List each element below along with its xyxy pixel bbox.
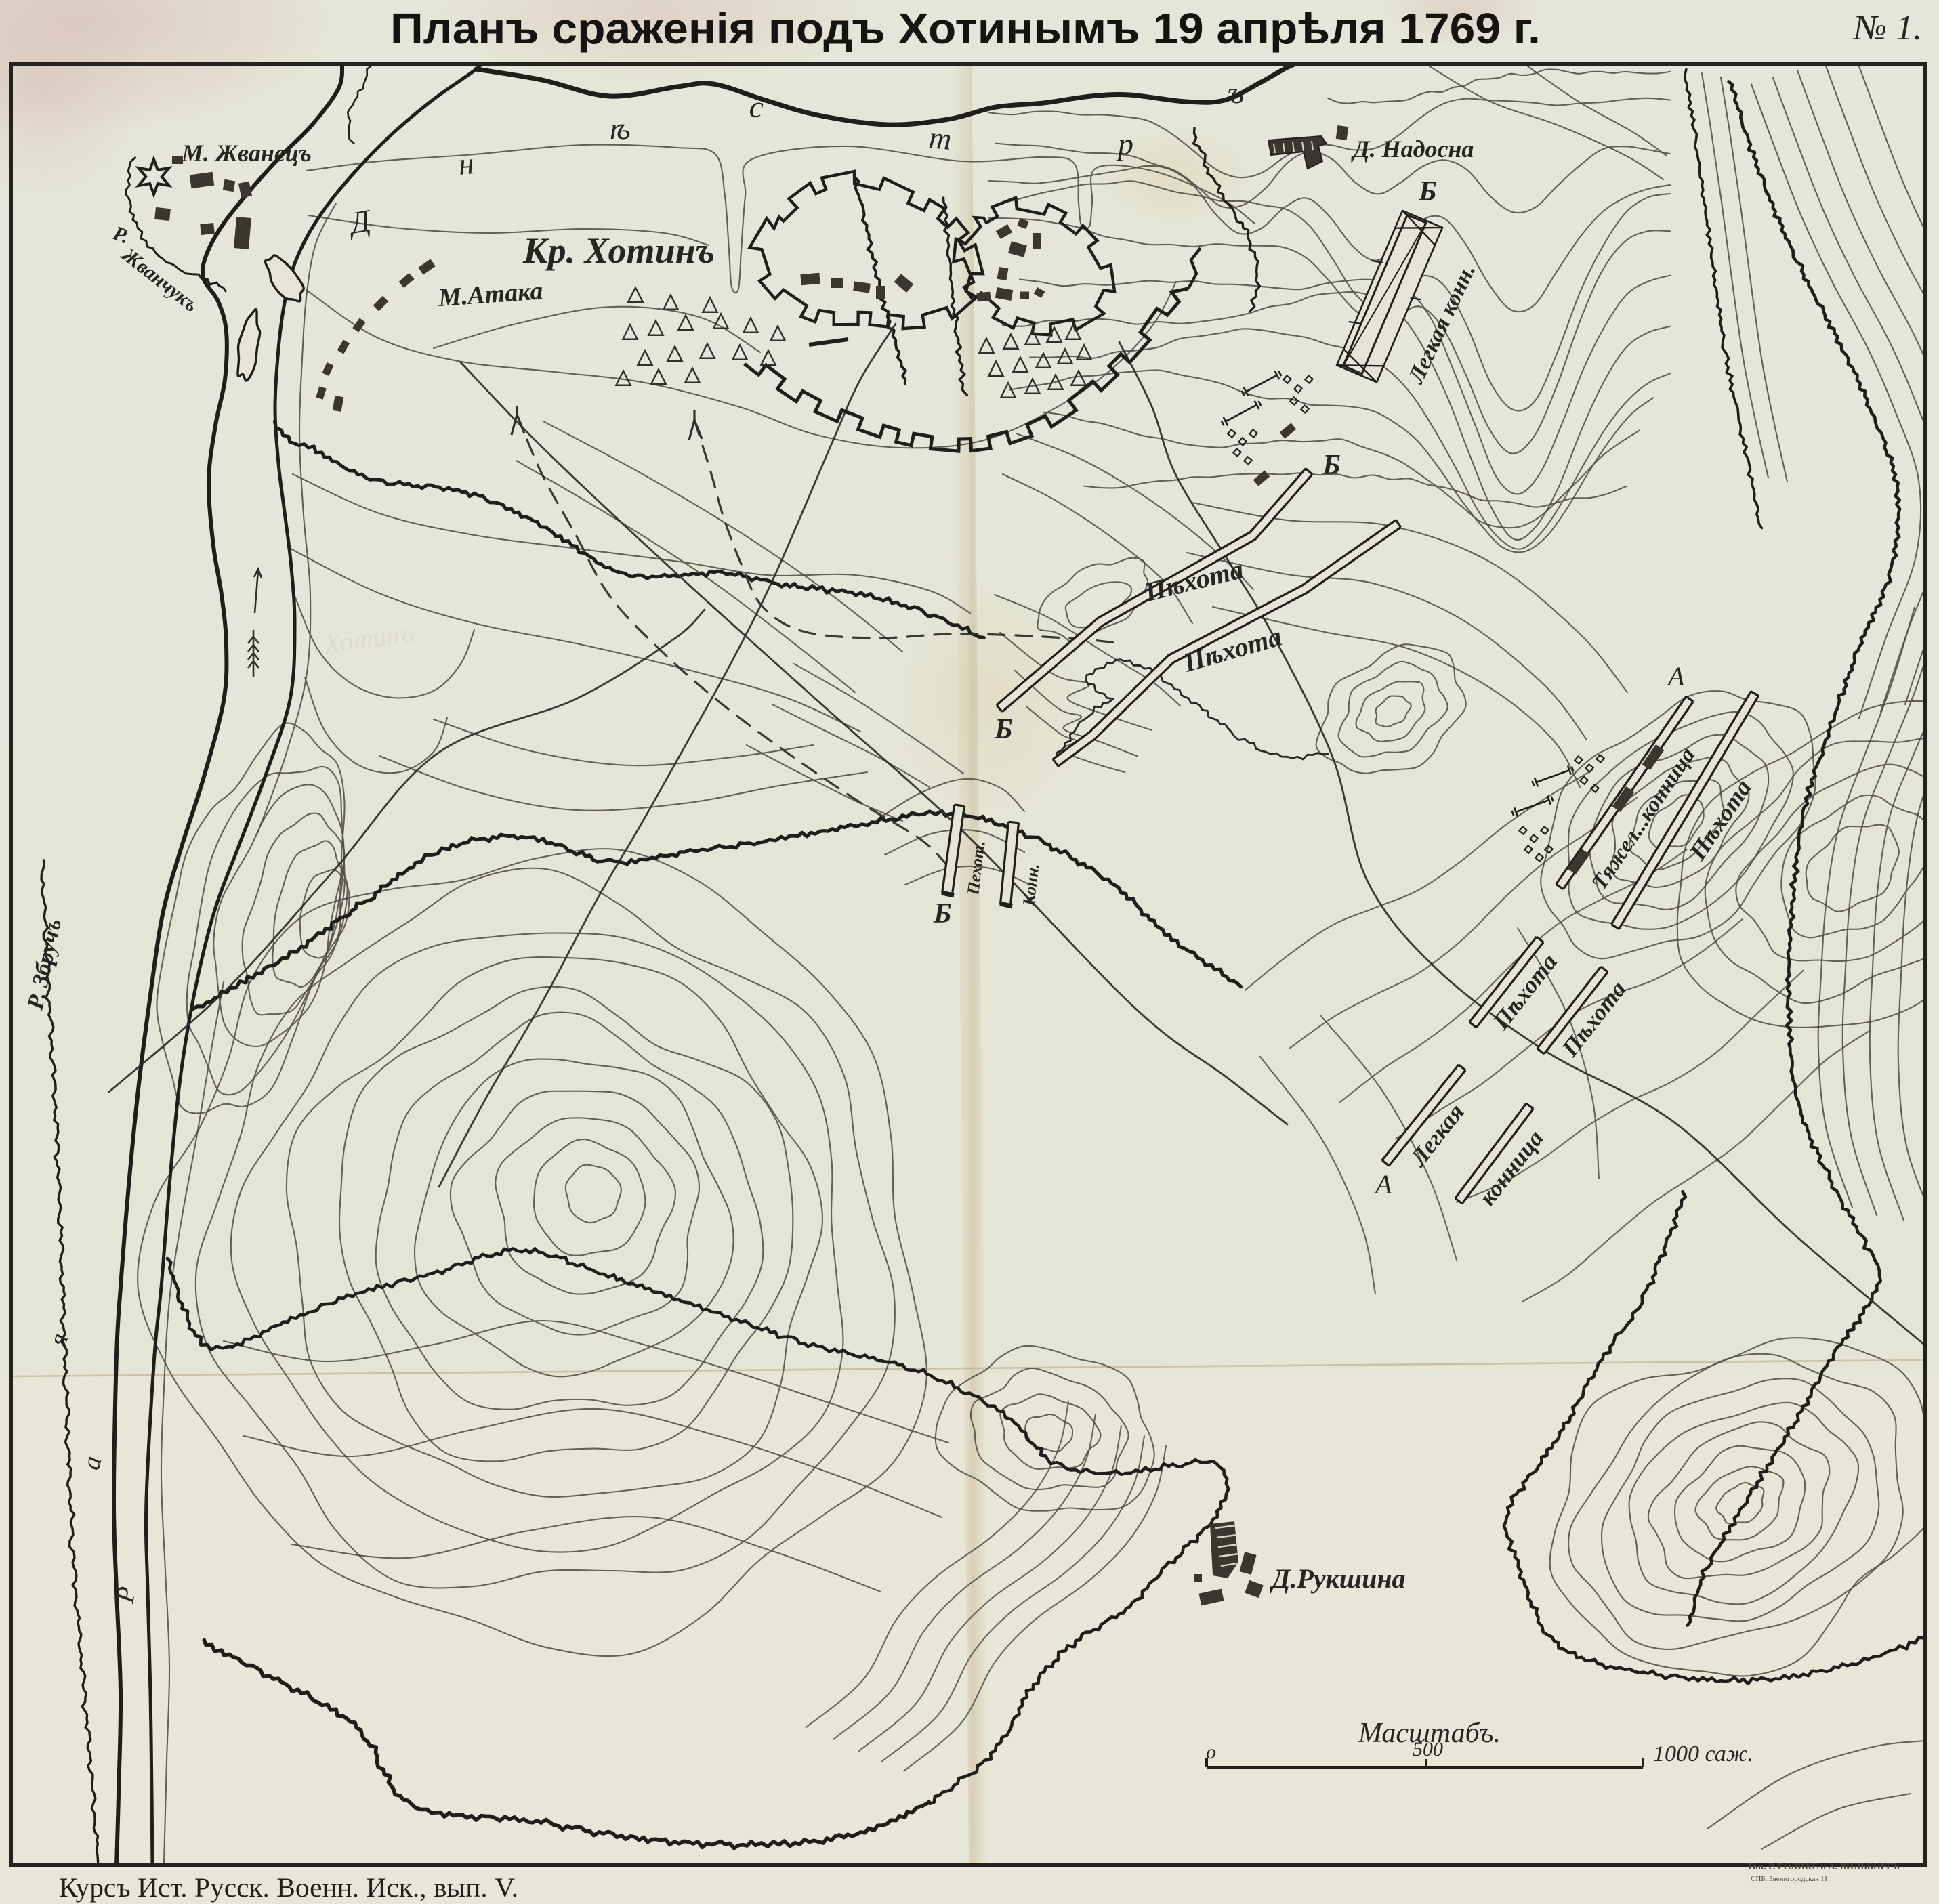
svg-text:Д.Рукшина: Д.Рукшина: [1269, 1563, 1406, 1594]
svg-text:Б: Б: [1322, 450, 1341, 481]
svg-text:Б: Б: [994, 714, 1013, 745]
svg-text:ъ: ъ: [1228, 75, 1244, 110]
svg-text:500: 500: [1413, 1738, 1443, 1760]
svg-text:М. Жванецъ: М. Жванецъ: [181, 140, 312, 167]
svg-text:н: н: [457, 146, 475, 182]
svg-text:Б: Б: [933, 898, 952, 929]
svg-text:№ 1.: № 1.: [1852, 9, 1922, 47]
svg-text:о: о: [1206, 1741, 1216, 1763]
svg-text:Планъ сраженія подъ Хотинымъ 1: Планъ сраженія подъ Хотинымъ 19 апрѣля 1…: [390, 4, 1541, 53]
svg-text:1000 саж.: 1000 саж.: [1653, 1741, 1753, 1767]
svg-text:А: А: [1373, 1169, 1392, 1200]
svg-text:А: А: [1666, 661, 1685, 692]
svg-text:СПБ. Звенигородская 11: СПБ. Звенигородская 11: [1751, 1875, 1828, 1883]
svg-text:Б: Б: [1418, 176, 1437, 207]
svg-text:р: р: [1116, 127, 1133, 161]
svg-text:ѣ: ѣ: [610, 111, 631, 146]
svg-text:Д. Надосна: Д. Надосна: [1351, 135, 1474, 163]
svg-text:т: т: [927, 120, 953, 156]
svg-text:Кр. Хотинъ: Кр. Хотинъ: [522, 230, 715, 271]
svg-text:Курсъ Ист. Русск. Военн. Иск.,: Курсъ Ист. Русск. Военн. Иск., вып. V.: [59, 1872, 518, 1903]
svg-text:Тип. Р. ГОЛИКЕ и А. ВИЛЬБОРГЪ: Тип. Р. ГОЛИКЕ и А. ВИЛЬБОРГЪ: [1747, 1862, 1900, 1872]
